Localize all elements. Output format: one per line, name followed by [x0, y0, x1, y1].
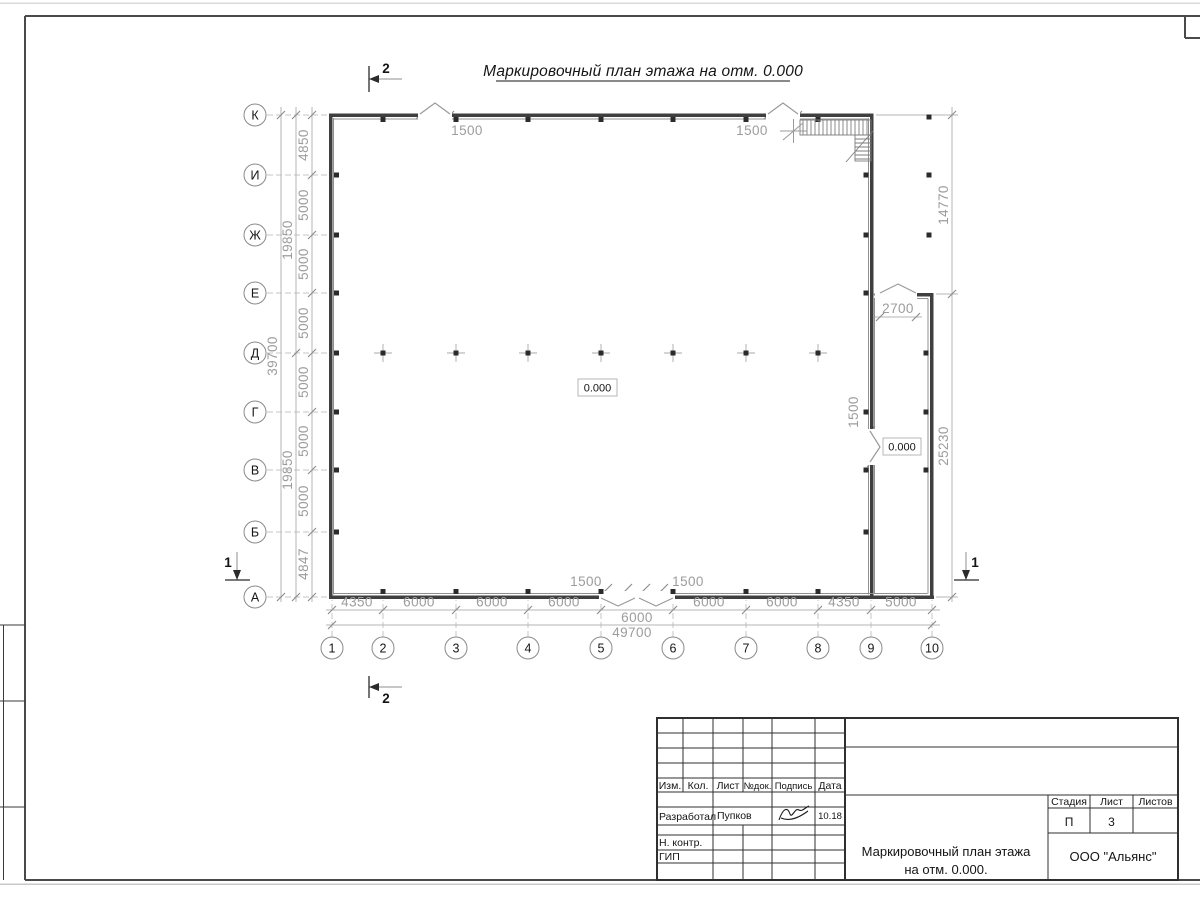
plan-title: Маркировочный план этажа на отм. 0.000: [483, 63, 803, 80]
level-mark-main: 0.000: [578, 379, 617, 396]
gate-symbols: [420, 103, 916, 606]
title-block-stage: Стадия Лист Листов П 3: [1051, 796, 1173, 829]
title-block-headers: Изм. Кол. Лист №док. Подпись Дата: [659, 780, 842, 792]
wall-openings: [418, 108, 917, 602]
axis-row-G: Г: [252, 406, 259, 420]
axis-row-D: Д: [251, 347, 260, 361]
sheet-label: Лист: [1100, 796, 1123, 808]
sheet-frame: [25, 16, 1200, 880]
gate-labels: 1500 1500 1500 1500 1500: [451, 123, 861, 589]
svg-text:4350: 4350: [828, 595, 860, 610]
svg-text:19850: 19850: [280, 220, 295, 260]
svg-text:4350: 4350: [341, 595, 373, 610]
axis-markers-cols: [321, 637, 943, 659]
svg-text:6000: 6000: [548, 595, 580, 610]
axis-col-4: 4: [525, 642, 532, 656]
company-name: ООО "Альянс": [1070, 849, 1157, 864]
svg-text:6000: 6000: [476, 595, 508, 610]
svg-text:6000: 6000: [766, 595, 798, 610]
dims-left: 4850 5000 5000 5000 5000 5000 5000 4847 …: [265, 129, 311, 580]
svg-text:5000: 5000: [296, 307, 311, 339]
dim-annex-opening: 2700: [882, 301, 914, 316]
section-mark-left: 1: [224, 552, 250, 580]
dim-bottom-total: 49700: [612, 625, 652, 640]
paper-edges: [0, 3, 1200, 884]
svg-text:Маркировочный план этажа: Маркировочный план этажа: [862, 844, 1031, 859]
svg-text:5000: 5000: [296, 366, 311, 398]
axis-col-1: 1: [329, 642, 336, 656]
axis-col-9: 9: [868, 642, 875, 656]
walls-inner-line: [333, 118, 928, 595]
stair: [800, 120, 873, 162]
side-door-label: 1500: [846, 396, 861, 428]
dims-right: 14770 25230 2700: [882, 185, 951, 466]
axis-col-6: 6: [670, 642, 677, 656]
svg-text:5000: 5000: [296, 189, 311, 221]
axis-col-3: 3: [453, 642, 460, 656]
svg-text:Дата: Дата: [818, 780, 841, 792]
svg-text:0.000: 0.000: [888, 442, 916, 454]
frame-corner-box: [1185, 17, 1200, 38]
developer-label: Разработал: [659, 811, 716, 823]
axis-col-10: 10: [925, 642, 939, 656]
svg-text:Изм.: Изм.: [659, 780, 682, 792]
section-mark-right: 1: [954, 552, 979, 580]
svg-text:14770: 14770: [936, 185, 951, 225]
axis-row-I: И: [251, 169, 260, 183]
stage-value: П: [1065, 815, 1074, 829]
developer-name: Пупков: [717, 810, 752, 822]
svg-text:39700: 39700: [265, 336, 280, 376]
axis-labels-cols: 1 2 3 4 5 6 7 8 9 10: [329, 642, 939, 656]
axis-row-Zh: Ж: [249, 229, 261, 243]
svg-text:2: 2: [382, 691, 390, 706]
dimension-ticks: [277, 111, 956, 629]
svg-text:№док.: №док.: [744, 781, 772, 792]
svg-text:Подпись: Подпись: [775, 781, 813, 792]
svg-text:4850: 4850: [296, 129, 311, 161]
svg-text:4847: 4847: [296, 548, 311, 580]
stage-label: Стадия: [1051, 796, 1087, 808]
svg-text:6000: 6000: [693, 595, 725, 610]
svg-text:2: 2: [382, 61, 390, 76]
svg-text:5000: 5000: [296, 425, 311, 457]
title-block-doc-title: Маркировочный план этажа на отм. 0.000.: [862, 844, 1031, 877]
floor-plan-drawing: Маркировочный план этажа на отм. 0.000: [0, 0, 1200, 900]
axis-col-8: 8: [815, 642, 822, 656]
sheets-label: Листов: [1138, 796, 1173, 808]
svg-text:6000: 6000: [621, 610, 653, 625]
svg-text:0.000: 0.000: [584, 383, 612, 395]
axis-row-V: В: [251, 464, 259, 478]
svg-text:25230: 25230: [936, 426, 951, 466]
axis-leader-lines: [267, 115, 932, 637]
svg-text:1: 1: [224, 555, 232, 570]
developer-date: 10.18: [818, 811, 842, 822]
svg-text:1: 1: [971, 555, 979, 570]
axis-col-7: 7: [743, 642, 750, 656]
gip-label: ГИП: [659, 851, 680, 863]
axis-row-B: Б: [251, 526, 259, 540]
title-block-rows: Разработал Пупков 10.18 Н. контр. ГИП: [659, 810, 842, 863]
axis-col-2: 2: [380, 642, 387, 656]
svg-text:5000: 5000: [296, 248, 311, 280]
gate-top-right-label: 1500: [736, 123, 768, 138]
axis-row-A: А: [251, 591, 260, 605]
svg-text:19850: 19850: [280, 450, 295, 490]
walls: [329, 114, 934, 599]
gate-bottom-left-label: 1500: [570, 574, 602, 589]
section-mark-top: 2: [369, 61, 402, 92]
signature: [779, 806, 809, 820]
axis-row-K: К: [251, 109, 259, 123]
side-stamp-boxes: [0, 625, 25, 880]
ncontrol-label: Н. контр.: [659, 837, 702, 849]
dimension-lines: [281, 107, 958, 625]
gate-bottom-right-label: 1500: [672, 574, 704, 589]
level-mark-annex: 0.000: [883, 438, 921, 455]
svg-text:5000: 5000: [296, 485, 311, 517]
svg-text:5000: 5000: [885, 595, 917, 610]
section-mark-bottom: 2: [369, 676, 402, 706]
wall-pilasters: [334, 115, 932, 595]
svg-text:6000: 6000: [403, 595, 435, 610]
axis-row-E: Е: [251, 287, 259, 301]
drawing-sheet: Маркировочный план этажа на отм. 0.000: [0, 0, 1200, 900]
svg-text:Лист: Лист: [717, 780, 740, 792]
sheet-value: 3: [1108, 815, 1115, 829]
gate-top-left-label: 1500: [451, 123, 483, 138]
svg-text:на отм. 0.000.: на отм. 0.000.: [904, 862, 987, 877]
axis-col-5: 5: [598, 642, 605, 656]
svg-text:Кол.: Кол.: [688, 780, 709, 792]
